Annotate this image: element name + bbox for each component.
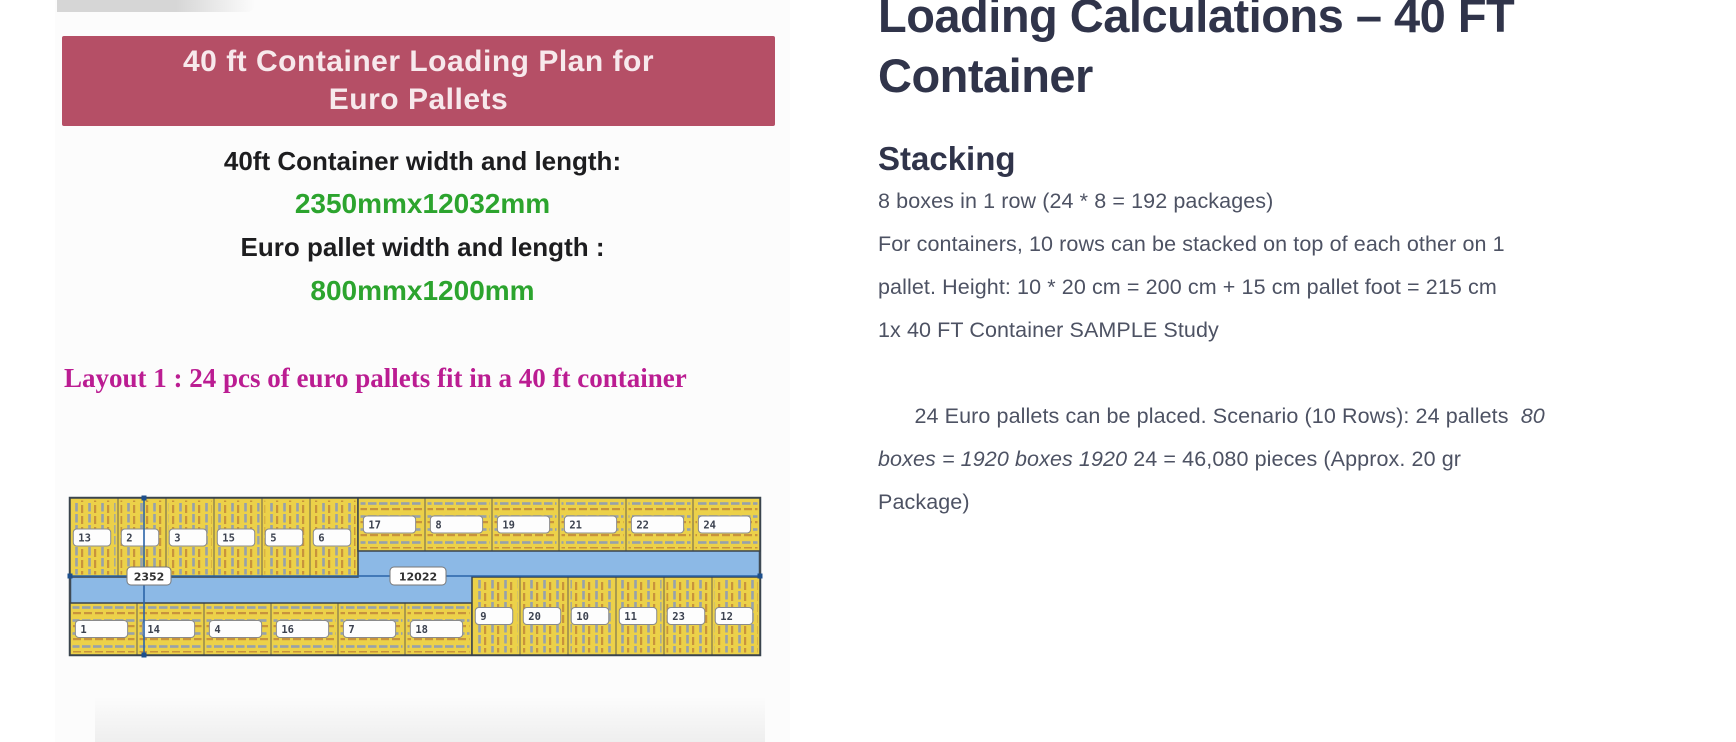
pallet-number: 20 bbox=[528, 611, 541, 623]
photo-top-edge bbox=[57, 0, 255, 12]
calc-text-pre: 24 Euro pallets can be placed. Scenario … bbox=[914, 404, 1520, 428]
article: Loading Calculations – 40 FT Container S… bbox=[878, 0, 1678, 567]
pallet-number: 1 bbox=[80, 624, 86, 636]
pallet-number: 2 bbox=[126, 533, 132, 545]
figure-banner: 40 ft Container Loading Plan for Euro Pa… bbox=[62, 36, 775, 126]
pallet-number: 3 bbox=[174, 533, 180, 545]
paragraph-stack-height: For containers, 10 rows can be stacked o… bbox=[878, 223, 1678, 309]
pallet-number: 5 bbox=[270, 533, 276, 545]
loading-plan-figure: 40 ft Container Loading Plan for Euro Pa… bbox=[55, 0, 790, 742]
dimension-end-marker bbox=[68, 574, 73, 579]
pallet-number: 24 bbox=[703, 520, 716, 532]
length-dimension-label: 12022 bbox=[399, 571, 437, 584]
width-dimension-label: 2352 bbox=[134, 571, 165, 584]
pallet-number: 6 bbox=[318, 533, 324, 545]
pallet-dimensions-value: 800mmx1200mm bbox=[55, 275, 790, 307]
paragraph-boxes-per-row: 8 boxes in 1 row (24 * 8 = 192 packages) bbox=[878, 180, 1678, 223]
figure-banner-title: 40 ft Container Loading Plan for Euro Pa… bbox=[183, 43, 654, 119]
pallet-number: 13 bbox=[78, 533, 91, 545]
dimension-end-marker bbox=[758, 574, 763, 579]
pallet-dimensions-label: Euro pallet width and length : bbox=[55, 232, 790, 263]
layout-caption: Layout 1 : 24 pcs of euro pallets fit in… bbox=[64, 363, 687, 394]
page: 40 ft Container Loading Plan for Euro Pa… bbox=[0, 0, 1736, 742]
pallet-number: 10 bbox=[576, 611, 589, 623]
photo-bottom-shade bbox=[95, 696, 765, 742]
pallet-number: 16 bbox=[281, 624, 294, 636]
pallet-number: 9 bbox=[480, 611, 486, 623]
paragraph-pallet-calculation: 24 Euro pallets can be placed. Scenario … bbox=[878, 352, 1678, 567]
pallet-number: 12 bbox=[720, 611, 733, 623]
loading-plan-diagram-svg: 1323155617819212224114416718920101123122… bbox=[60, 448, 770, 663]
pallet-number: 14 bbox=[147, 624, 160, 636]
container-dimensions-value: 2350mmx12032mm bbox=[55, 188, 790, 220]
section-heading-stacking: Stacking bbox=[878, 138, 1678, 180]
pallet-number: 15 bbox=[222, 533, 235, 545]
pallet-number: 11 bbox=[624, 611, 637, 623]
pallet-number: 17 bbox=[368, 520, 381, 532]
pallet-number: 23 bbox=[672, 611, 685, 623]
pallet-number: 18 bbox=[415, 624, 428, 636]
loading-plan-diagram: 1323155617819212224114416718920101123122… bbox=[60, 448, 770, 663]
pallet-number: 19 bbox=[502, 520, 515, 532]
dimension-end-marker bbox=[142, 653, 147, 658]
container-dimensions-label: 40ft Container width and length: bbox=[55, 146, 790, 177]
pallet-number: 7 bbox=[348, 624, 354, 636]
pallet-number: 22 bbox=[636, 520, 649, 532]
pallet-number: 21 bbox=[569, 520, 582, 532]
article-title: Loading Calculations – 40 FT Container bbox=[878, 0, 1678, 106]
paragraph-sample-study: 1x 40 FT Container SAMPLE Study bbox=[878, 309, 1678, 352]
pallet-number: 4 bbox=[214, 624, 220, 636]
dimension-end-marker bbox=[142, 496, 147, 501]
pallet-number: 8 bbox=[435, 520, 441, 532]
